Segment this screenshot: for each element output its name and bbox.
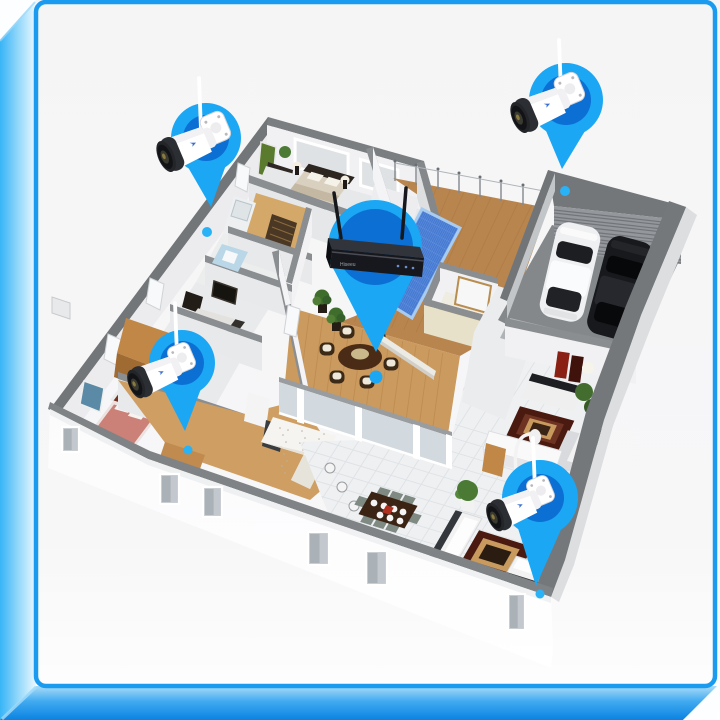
- svg-text:Hiseeu: Hiseeu: [340, 262, 356, 268]
